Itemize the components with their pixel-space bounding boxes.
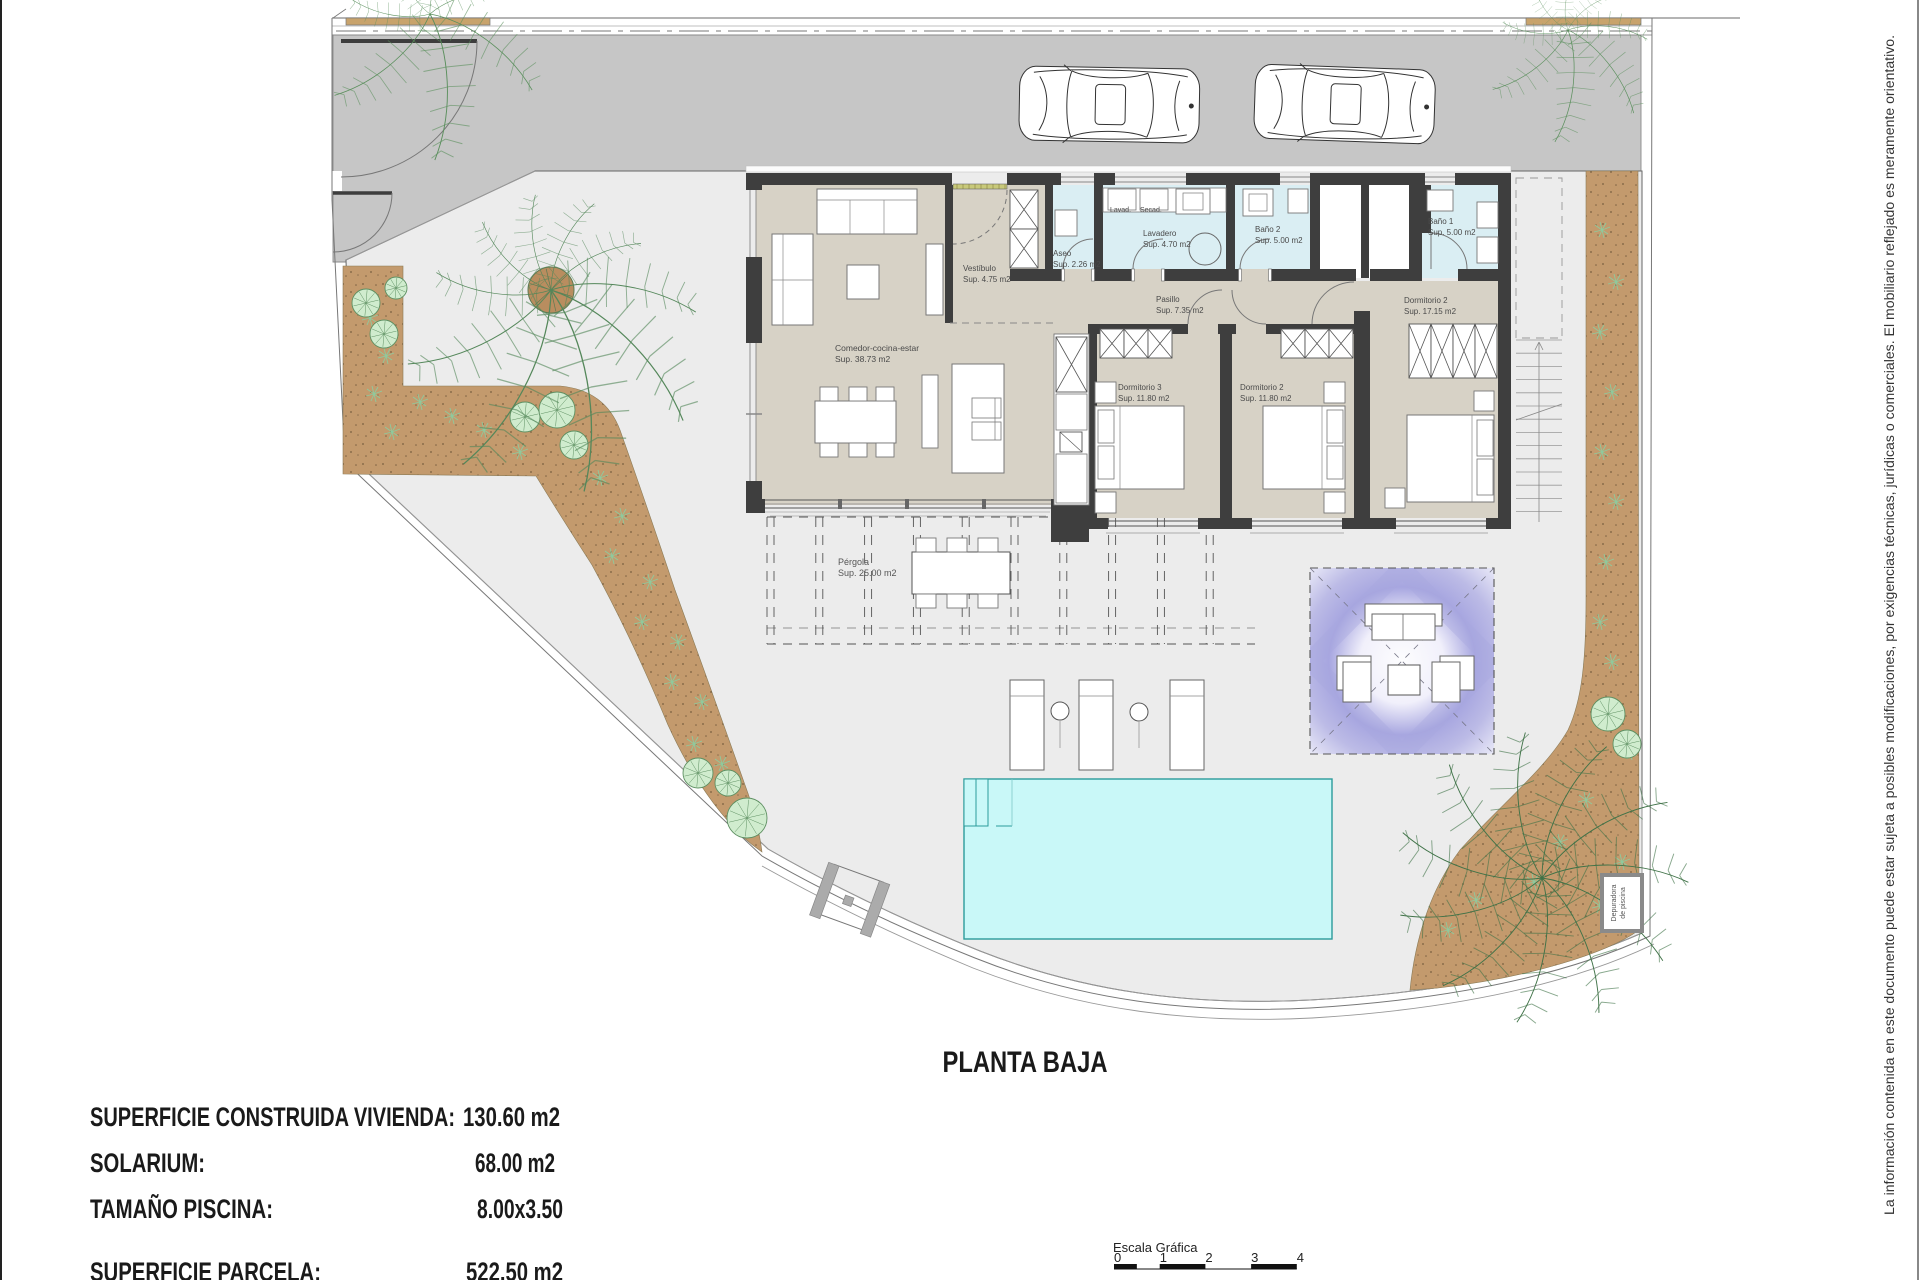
svg-text:Secad.: Secad.: [1140, 207, 1162, 214]
svg-text:Lavadero: Lavadero: [1143, 229, 1177, 238]
svg-text:Sup. 38.73 m2: Sup. 38.73 m2: [835, 354, 891, 364]
svg-text:Dormitorio 2: Dormitorio 2: [1240, 383, 1284, 392]
svg-text:SUPERFICIE PARCELA:: SUPERFICIE PARCELA:: [90, 1257, 321, 1280]
svg-text:Depuradora: Depuradora: [1611, 884, 1618, 921]
svg-text:Sup. 5.00 m2: Sup. 5.00 m2: [1428, 228, 1476, 237]
svg-text:Baño 1: Baño 1: [1428, 217, 1454, 226]
svg-text:1: 1: [1160, 1250, 1167, 1265]
svg-text:de piscina: de piscina: [1620, 887, 1627, 919]
svg-text:Pérgola: Pérgola: [838, 557, 869, 567]
svg-text:Escala Gráfica: Escala Gráfica: [1113, 1240, 1198, 1255]
svg-text:TAMAÑO PISCINA:: TAMAÑO PISCINA:: [90, 1193, 273, 1224]
svg-text:8.00x3.50: 8.00x3.50: [477, 1194, 563, 1224]
svg-text:Sup. 7.35 m2: Sup. 7.35 m2: [1156, 306, 1204, 315]
svg-text:SOLARIUM:: SOLARIUM:: [90, 1148, 205, 1178]
svg-text:La información contenida en es: La información contenida en este documen…: [1882, 35, 1897, 1215]
svg-text:Sup. 11.80 m2: Sup. 11.80 m2: [1118, 394, 1170, 403]
svg-text:Sup. 5.00 m2: Sup. 5.00 m2: [1255, 236, 1303, 245]
svg-text:2: 2: [1205, 1250, 1212, 1265]
svg-text:Sup. 11.80 m2: Sup. 11.80 m2: [1240, 394, 1292, 403]
svg-text:522.50 m2: 522.50 m2: [466, 1257, 563, 1280]
svg-text:Sup. 4.70 m2: Sup. 4.70 m2: [1143, 240, 1191, 249]
svg-text:Comedor-cocina-estar: Comedor-cocina-estar: [835, 343, 919, 353]
svg-text:Aseo: Aseo: [1053, 249, 1072, 258]
svg-text:130.60 m2: 130.60 m2: [463, 1102, 560, 1132]
svg-text:3: 3: [1251, 1250, 1258, 1265]
svg-text:Vestíbulo: Vestíbulo: [963, 264, 996, 273]
svg-text:Baño 2: Baño 2: [1255, 225, 1281, 234]
svg-text:Dormitorio 3: Dormitorio 3: [1118, 383, 1162, 392]
svg-text:Dormitorio 2: Dormitorio 2: [1404, 296, 1448, 305]
svg-text:Lavad.: Lavad.: [1110, 207, 1131, 214]
svg-text:Sup. 25.00 m2: Sup. 25.00 m2: [838, 568, 897, 578]
svg-text:Pasillo: Pasillo: [1156, 295, 1180, 304]
svg-text:PLANTA BAJA: PLANTA BAJA: [943, 1046, 1108, 1079]
svg-text:Sup. 17.15 m2: Sup. 17.15 m2: [1404, 307, 1457, 316]
svg-text:68.00 m2: 68.00 m2: [475, 1148, 555, 1178]
svg-text:Sup. 2.26 m2: Sup. 2.26 m2: [1053, 260, 1101, 269]
svg-text:0: 0: [1114, 1250, 1121, 1265]
svg-text:Sup. 4.75 m2: Sup. 4.75 m2: [963, 275, 1011, 284]
svg-text:4: 4: [1297, 1250, 1304, 1265]
svg-text:SUPERFICIE CONSTRUIDA VIVIENDA: SUPERFICIE CONSTRUIDA VIVIENDA:: [90, 1102, 455, 1132]
